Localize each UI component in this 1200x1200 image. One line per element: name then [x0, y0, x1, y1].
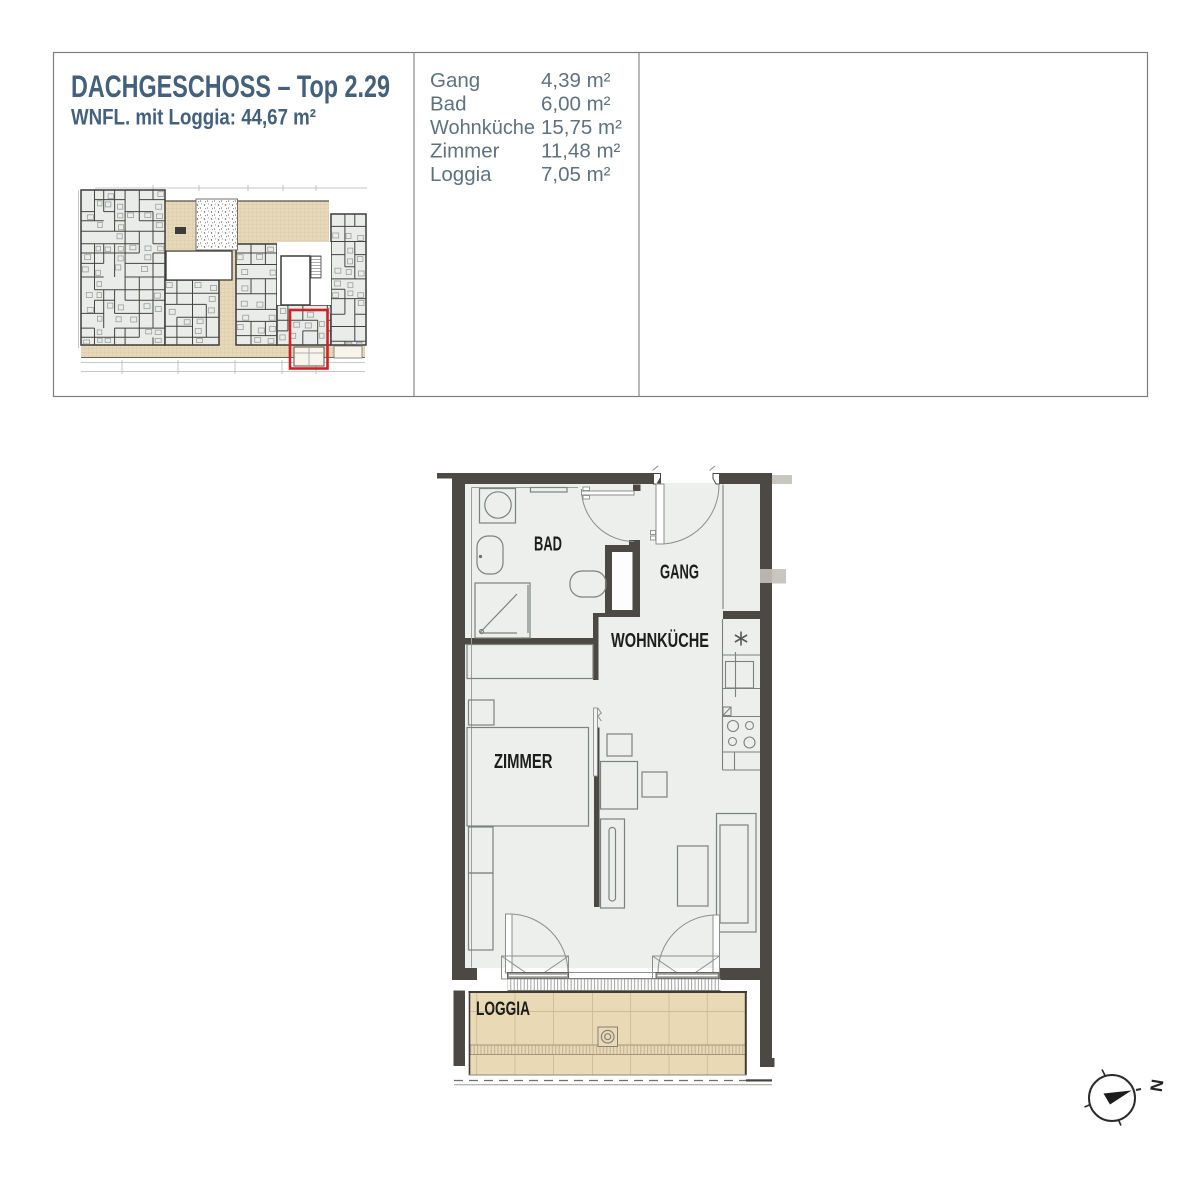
- svg-text:BAD: BAD: [534, 534, 562, 556]
- svg-text:4,39 m²: 4,39 m²: [541, 69, 611, 92]
- svg-text:7,05 m²: 7,05 m²: [541, 163, 611, 186]
- svg-text:ZIMMER: ZIMMER: [494, 751, 553, 773]
- svg-text:N: N: [1146, 1078, 1167, 1093]
- svg-text:6,00 m²: 6,00 m²: [541, 93, 611, 116]
- svg-text:Bad: Bad: [430, 93, 466, 116]
- svg-text:Gang: Gang: [430, 69, 480, 92]
- svg-text:Wohnküche: Wohnküche: [430, 116, 535, 139]
- svg-text:Zimmer: Zimmer: [430, 140, 500, 163]
- svg-text:15,75 m²: 15,75 m²: [541, 116, 622, 139]
- svg-text:Loggia: Loggia: [430, 163, 492, 186]
- svg-text:GANG: GANG: [660, 561, 699, 583]
- svg-text:WNFL. mit Loggia: 44,67 m²: WNFL. mit Loggia: 44,67 m²: [71, 105, 316, 130]
- svg-text:11,48 m²: 11,48 m²: [541, 140, 621, 163]
- svg-text:DACHGESCHOSS – Top 2.29: DACHGESCHOSS – Top 2.29: [71, 68, 390, 104]
- svg-text:LOGGIA: LOGGIA: [476, 999, 530, 1020]
- svg-text:WOHNKÜCHE: WOHNKÜCHE: [611, 629, 709, 652]
